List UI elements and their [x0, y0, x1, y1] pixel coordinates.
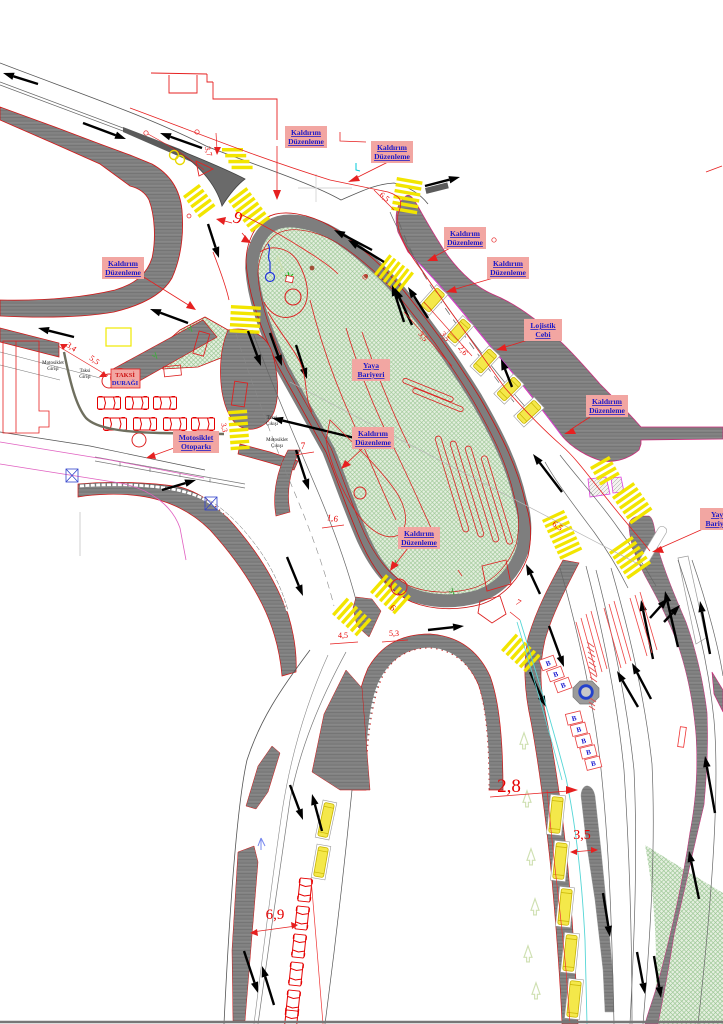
- svg-text:2,8: 2,8: [497, 776, 521, 797]
- svg-text:Düzenleme: Düzenleme: [105, 268, 141, 277]
- svg-text:Cebi: Cebi: [535, 330, 550, 339]
- svg-text:3,5: 3,5: [573, 828, 591, 843]
- svg-text:Çıkışı: Çıkışı: [271, 444, 284, 449]
- svg-text:Düzenleme: Düzenleme: [490, 268, 526, 277]
- svg-text:TAKSİ: TAKSİ: [115, 372, 135, 379]
- svg-text:Bariyeri: Bariyeri: [358, 370, 385, 379]
- svg-text:1,6: 1,6: [326, 512, 339, 524]
- svg-text:Motosiklet: Motosiklet: [266, 438, 288, 443]
- svg-text:Düzenleme: Düzenleme: [589, 406, 625, 415]
- svg-text:Kaldırım: Kaldırım: [291, 128, 322, 137]
- svg-text:Girişi: Girişi: [79, 375, 91, 380]
- svg-text:7: 7: [301, 441, 306, 451]
- svg-text:Kaldırım: Kaldırım: [358, 429, 389, 438]
- svg-text:Çıkışı: Çıkışı: [266, 422, 279, 427]
- svg-text:5,3: 5,3: [389, 629, 399, 638]
- svg-text:Düzenleme: Düzenleme: [288, 137, 324, 146]
- svg-text:6,9: 6,9: [266, 907, 285, 923]
- svg-text:Kaldırım: Kaldırım: [404, 529, 435, 538]
- svg-text:Kaldırım: Kaldırım: [592, 397, 623, 406]
- svg-text:Düzenleme: Düzenleme: [355, 438, 391, 447]
- svg-text:Bariyeri: Bariyeri: [706, 519, 723, 528]
- svg-text:Düzenleme: Düzenleme: [374, 152, 410, 161]
- svg-text:Lojistik: Lojistik: [530, 321, 556, 330]
- svg-text:Kaldırım: Kaldırım: [108, 259, 139, 268]
- svg-text:Kaldırım: Kaldırım: [493, 259, 524, 268]
- svg-text:Yaya: Yaya: [363, 361, 379, 370]
- svg-text:3,3: 3,3: [219, 422, 230, 433]
- svg-text:Kaldırım: Kaldırım: [450, 229, 481, 238]
- svg-text:Girişi: Girişi: [47, 367, 59, 372]
- svg-text:Düzenleme: Düzenleme: [447, 238, 483, 247]
- svg-text:Taksi: Taksi: [80, 369, 91, 374]
- svg-text:Kaldırım: Kaldırım: [377, 143, 408, 152]
- svg-text:Düzenleme: Düzenleme: [401, 538, 437, 547]
- svg-text:Motosiklet: Motosiklet: [42, 361, 64, 366]
- svg-text:DURAĞI: DURAĞI: [112, 379, 139, 387]
- svg-text:4,5: 4,5: [338, 631, 348, 640]
- svg-text:Motosiklet: Motosiklet: [179, 433, 214, 442]
- svg-text:Taksi: Taksi: [267, 416, 278, 421]
- svg-text:Yaya: Yaya: [711, 510, 723, 519]
- svg-text:Otoparkı: Otoparkı: [181, 442, 211, 451]
